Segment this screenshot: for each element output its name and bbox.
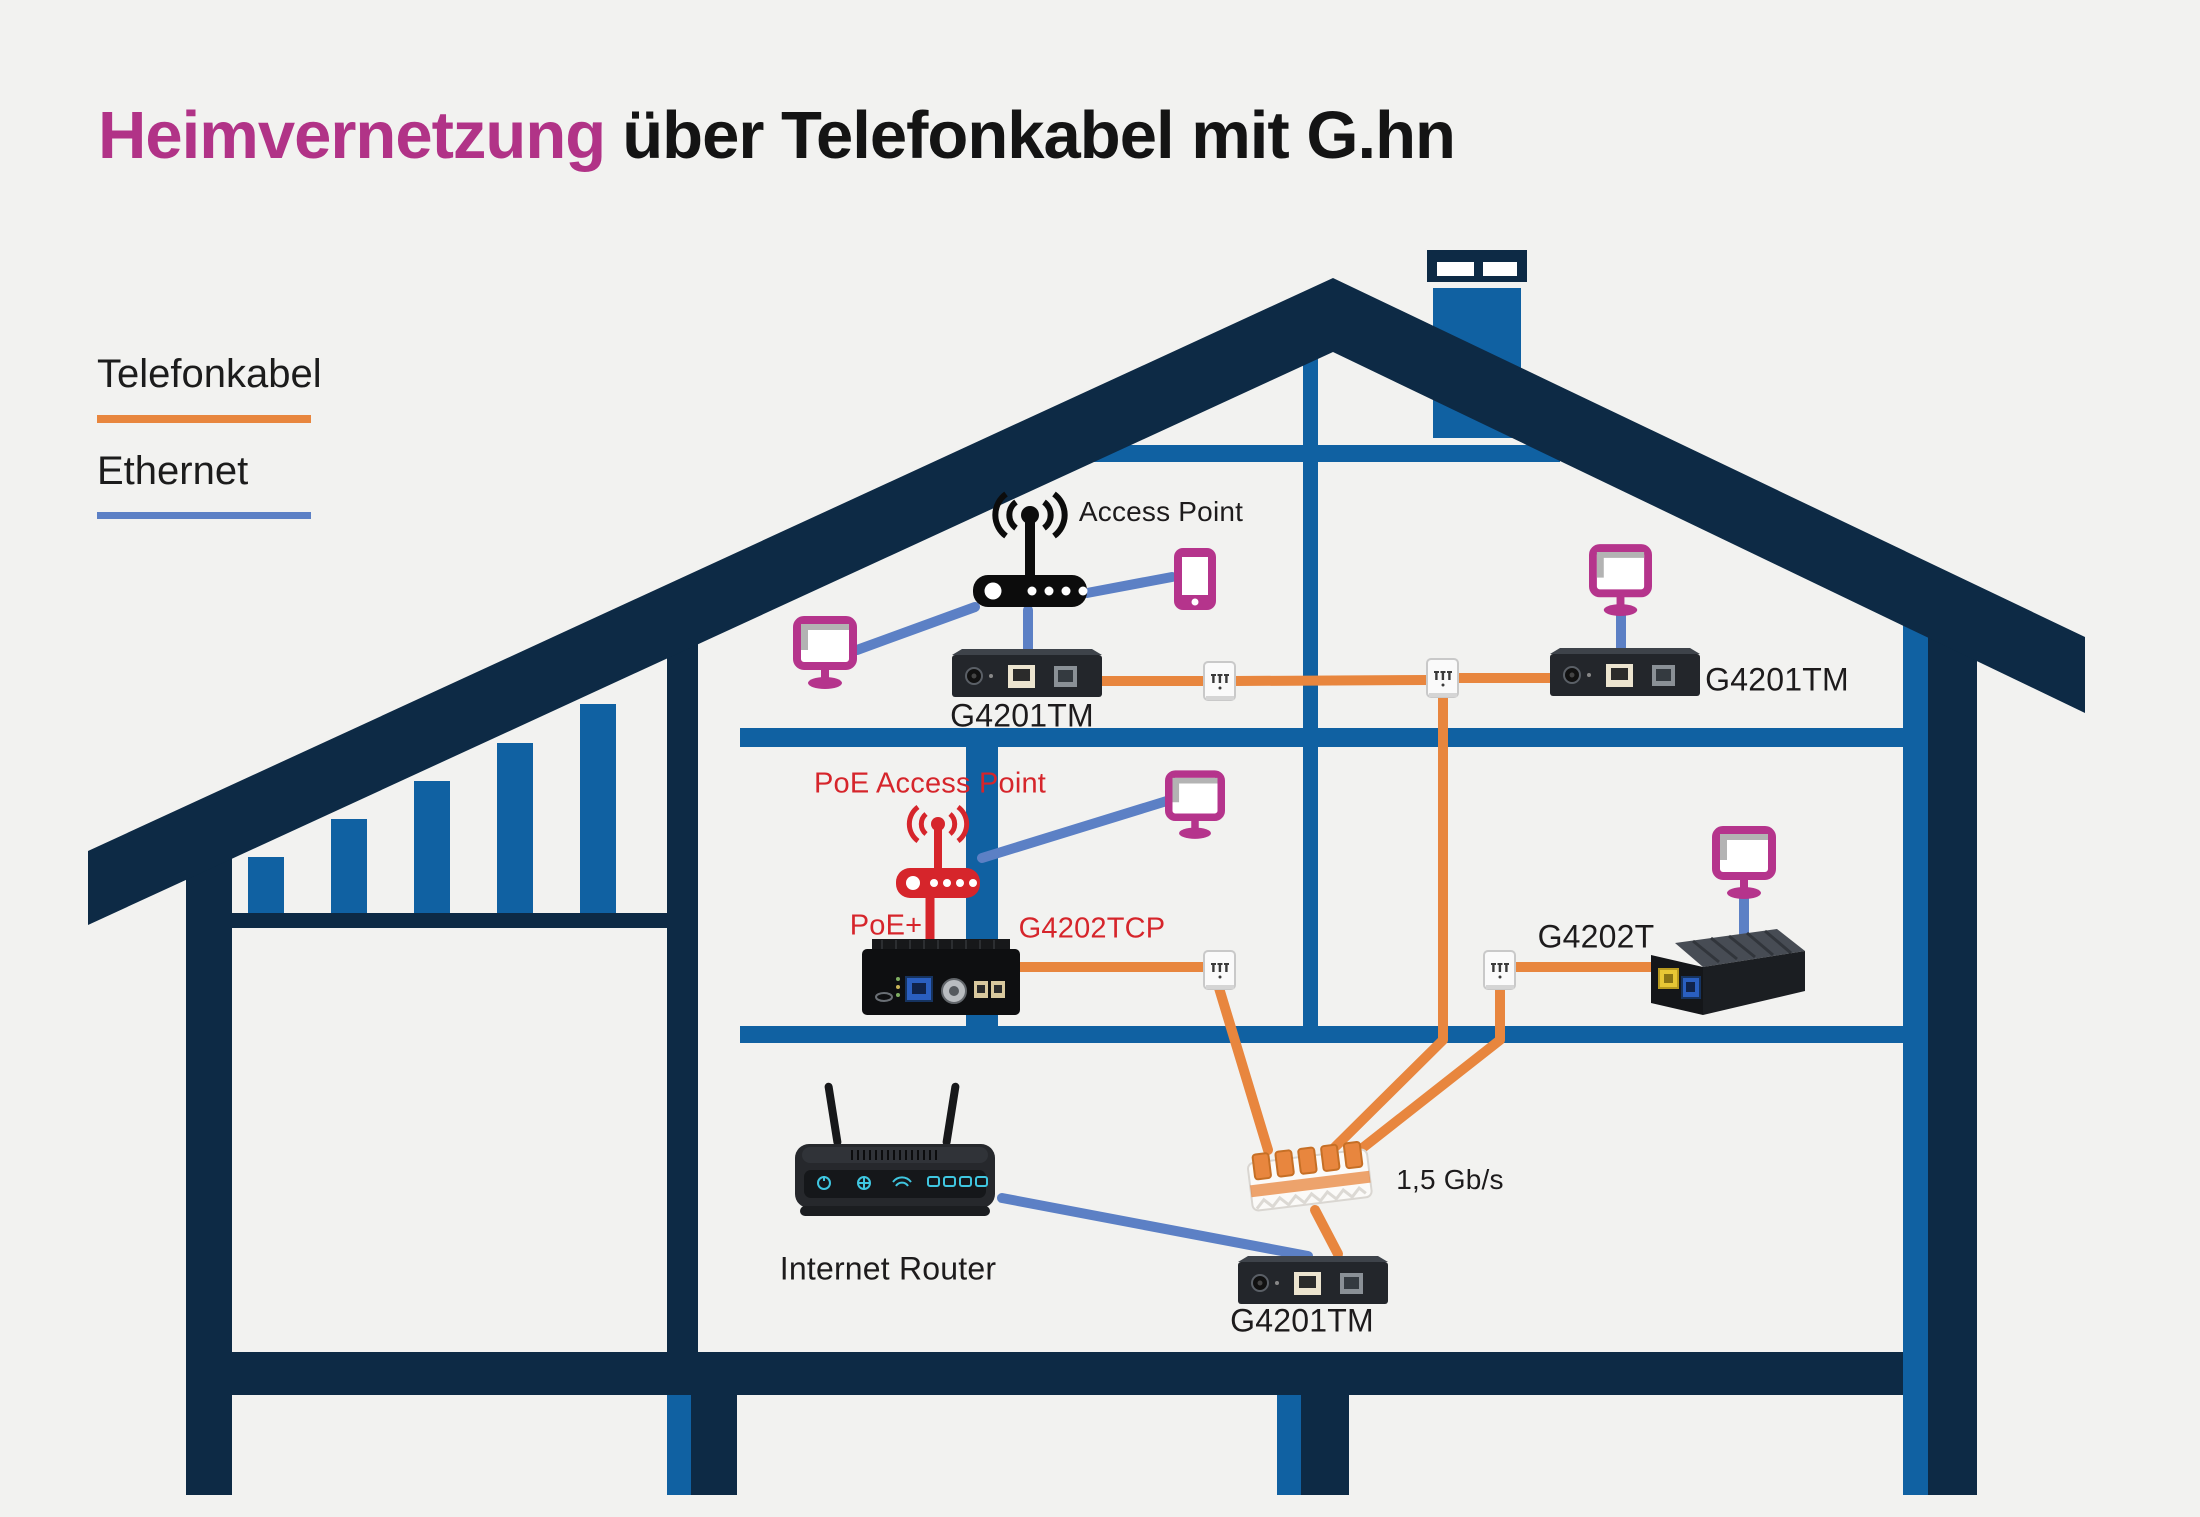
legend-ethernet-label: Ethernet (97, 449, 322, 494)
g4201tm-device (952, 643, 1102, 704)
roof-right-slope (1333, 278, 2085, 713)
telephone-wall-jack-icon (1483, 950, 1517, 997)
left-foundation-blue (667, 1395, 691, 1495)
g4202t-label: G4202T (1538, 919, 1655, 956)
monitor-icon (1589, 544, 1652, 624)
legend: Telefonkabel Ethernet (97, 352, 322, 545)
g4202t-device (1645, 925, 1805, 1025)
right-wall-blue (1903, 625, 1928, 1495)
internet-router-icon (790, 1072, 1000, 1227)
title-rest: über Telefonkabel mit G.hn (622, 98, 1455, 173)
g4201tm-attic-right-label: G4201TM (1705, 662, 1849, 699)
telephone-wall-jack-icon (1203, 661, 1237, 708)
center-foundation-blue (1277, 1395, 1301, 1495)
speed-label: 1,5 Gb/s (1396, 1164, 1503, 1196)
smartphone-icon (1173, 547, 1217, 616)
monitor-icon (793, 616, 857, 697)
monitor-icon (1712, 826, 1776, 907)
attic-floor (740, 728, 1904, 747)
g4201tm-device (1550, 642, 1700, 703)
g4202tcp-label: G4202TCP (1019, 913, 1166, 946)
telefonkabel-color-swatch (97, 415, 311, 423)
first-floor (740, 1026, 1904, 1043)
right-wall-dark (1928, 625, 1977, 1495)
legend-telefonkabel-label: Telefonkabel (97, 352, 322, 397)
poe-access-point-icon (868, 784, 1008, 903)
infographic-canvas: Heimvernetzungüber Telefonkabel mit G.hn… (0, 0, 2200, 1517)
g4202tcp-device (862, 939, 1020, 1020)
left-foundation-dark (691, 1395, 737, 1495)
porch-post (186, 845, 232, 1495)
ethernet-color-swatch (97, 512, 311, 519)
center-post (1303, 300, 1318, 1043)
telephone-wall-jack-icon (1203, 950, 1237, 997)
monitor-icon (1165, 770, 1225, 847)
g4201tm-attic-left-label: G4201TM (950, 698, 1094, 735)
access-point-label: Access Point (1079, 496, 1243, 528)
house-cross-section (0, 0, 2200, 1517)
page-title: Heimvernetzungüber Telefonkabel mit G.hn (98, 97, 1455, 174)
ground-beam (186, 1352, 1903, 1395)
house-structure (88, 250, 2085, 1495)
poe-access-point-label: PoE Access Point (814, 768, 1046, 801)
wire-splice-connector-icon (1244, 1137, 1376, 1227)
telephone-wall-jack-icon (1426, 658, 1460, 705)
internet-router-label: Internet Router (780, 1251, 996, 1288)
title-accent: Heimvernetzung (98, 98, 605, 173)
g4201tm-ground-label: G4201TM (1230, 1303, 1374, 1340)
poe-plus-label: PoE+ (850, 910, 923, 943)
center-foundation-dark (1301, 1395, 1349, 1495)
left-wall (667, 640, 698, 1395)
porch-rail-beam (186, 913, 667, 928)
